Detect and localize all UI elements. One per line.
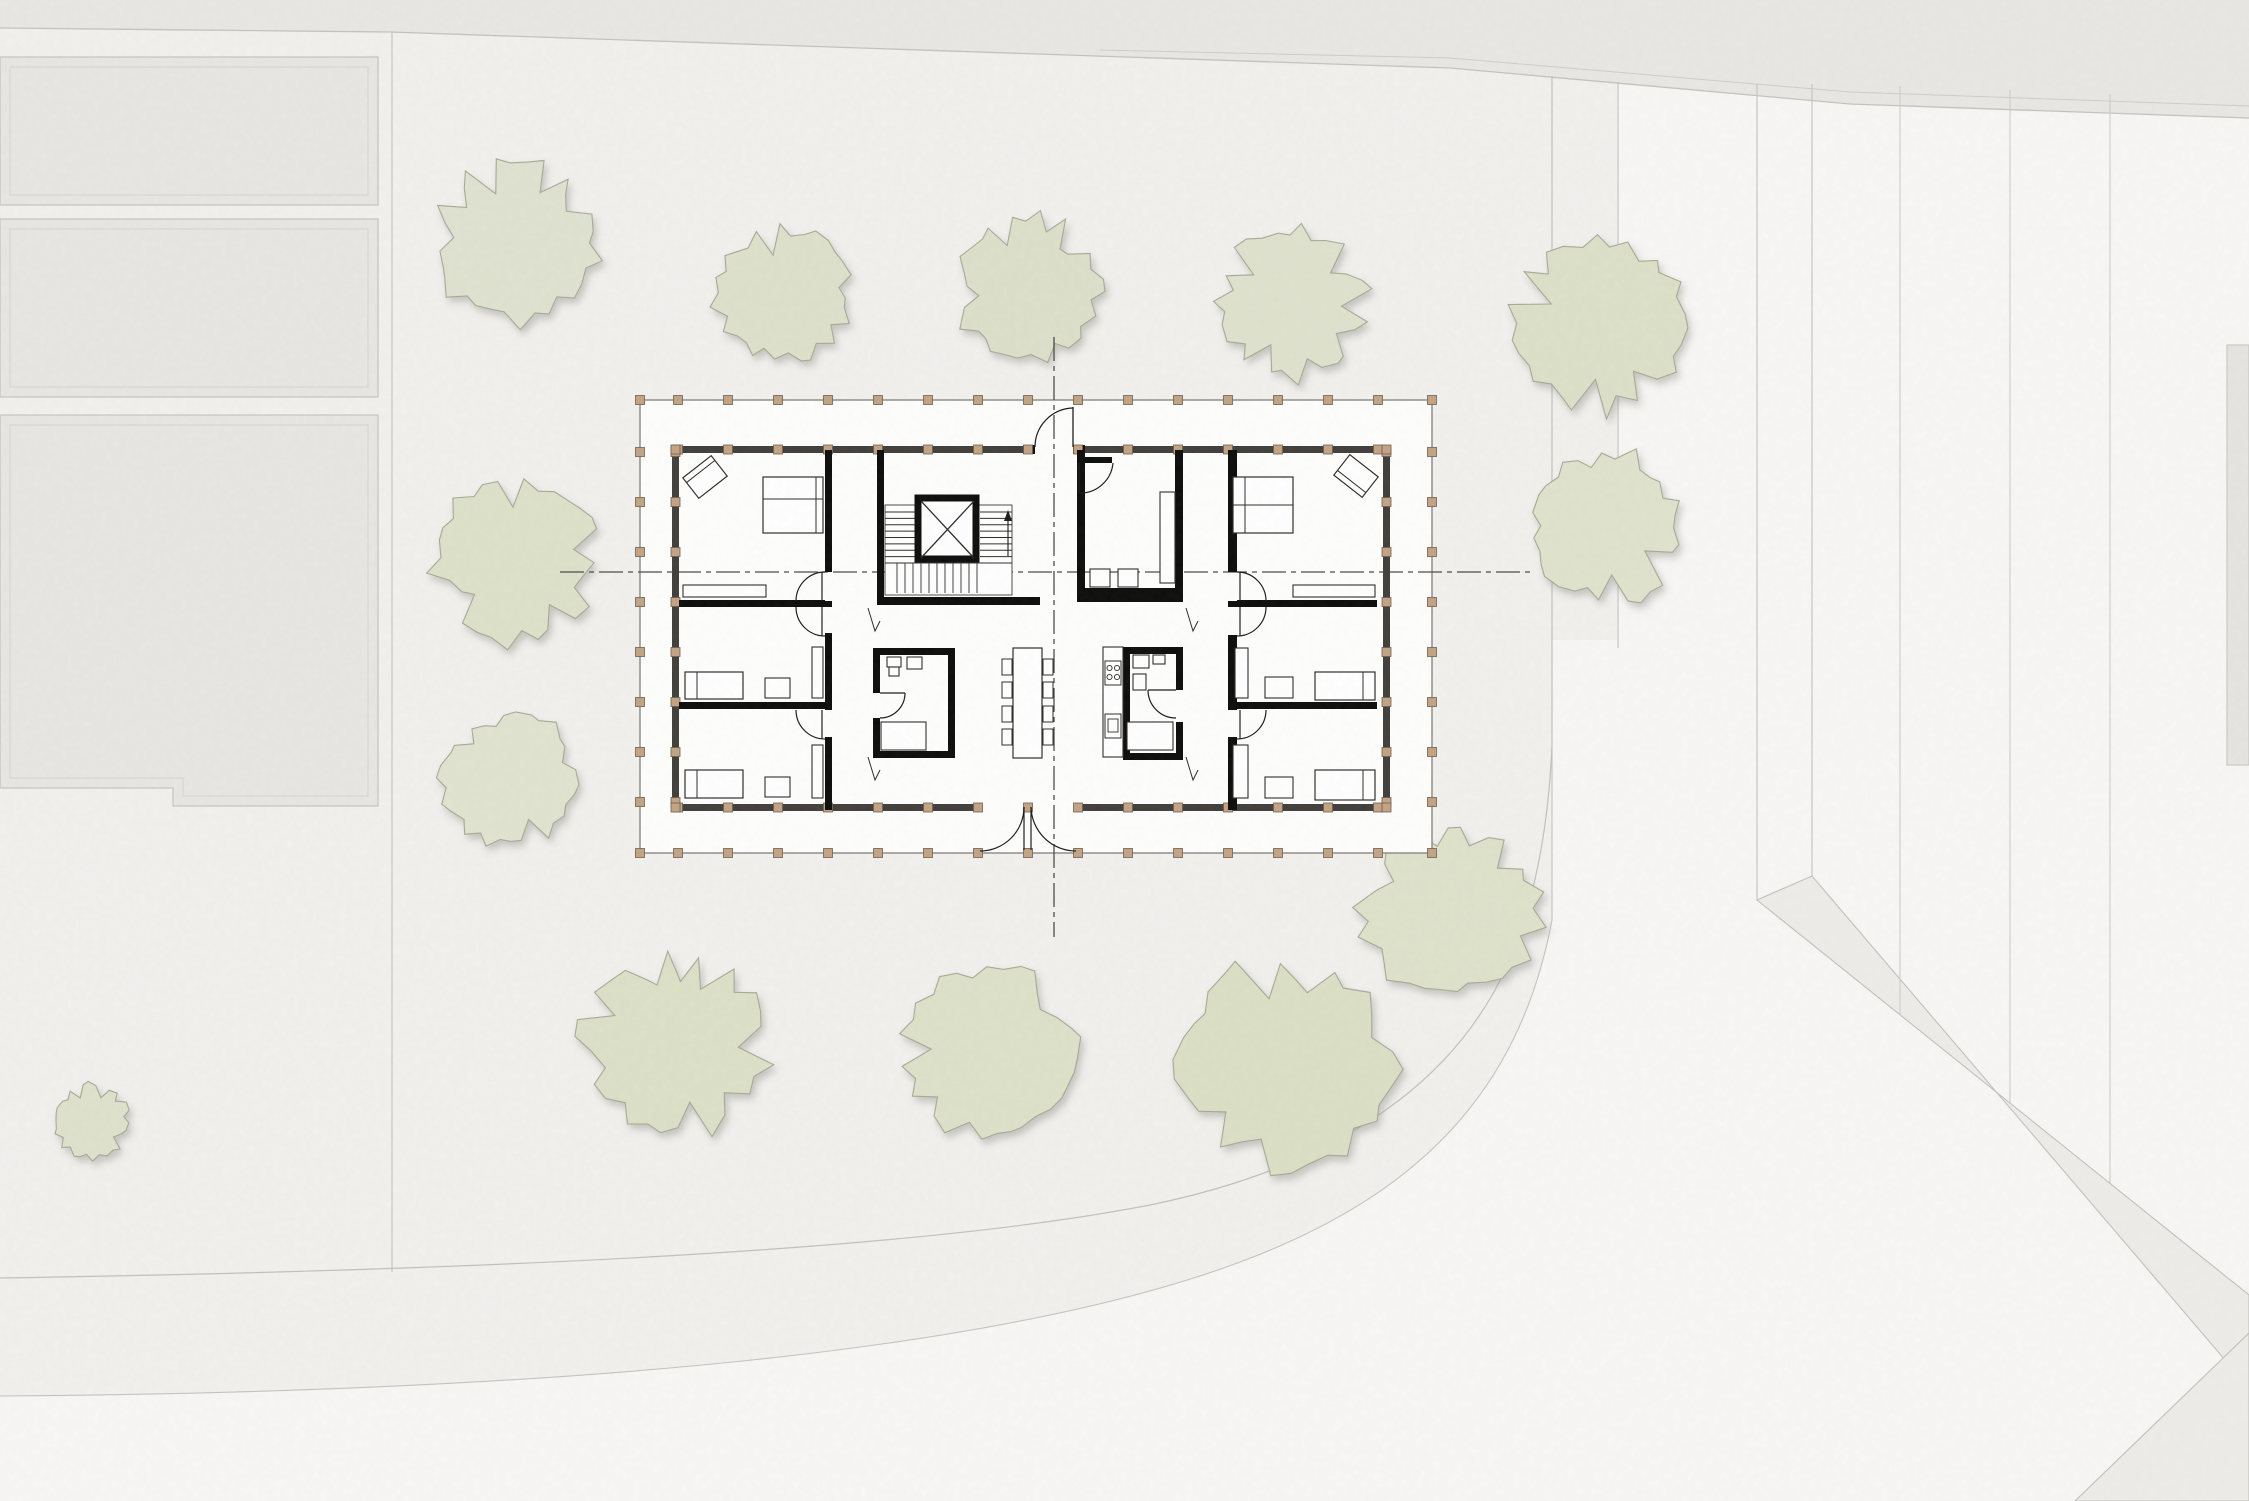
site-plan-page (0, 0, 2249, 1501)
paper-grain-texture (0, 0, 2249, 1501)
architectural-site-plan (0, 0, 2249, 1501)
